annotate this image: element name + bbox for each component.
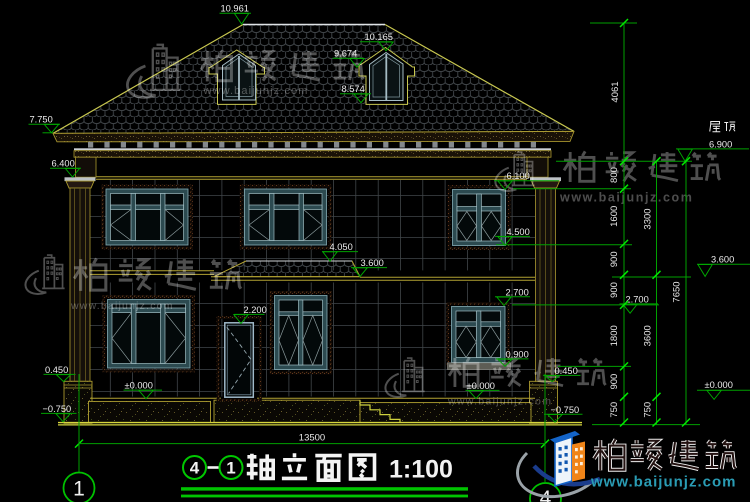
svg-text:0.450: 0.450 (555, 366, 578, 376)
svg-text:±0.000: ±0.000 (125, 381, 153, 391)
svg-text:6.900: 6.900 (709, 140, 732, 150)
svg-text:900: 900 (609, 251, 620, 267)
svg-text:±0.000: ±0.000 (705, 380, 733, 390)
svg-text:0.450: 0.450 (45, 365, 68, 375)
svg-text:800: 800 (609, 167, 620, 183)
svg-text:1:100: 1:100 (389, 456, 453, 484)
svg-text:750: 750 (609, 402, 620, 418)
svg-text:4061: 4061 (610, 81, 621, 102)
svg-text:750: 750 (643, 402, 654, 418)
svg-text:www.baijunjz.com: www.baijunjz.com (447, 396, 552, 408)
svg-text:8.574: 8.574 (342, 84, 365, 94)
svg-text:7.750: 7.750 (30, 114, 53, 124)
svg-text:1: 1 (226, 459, 235, 478)
svg-text:±0.000: ±0.000 (467, 381, 495, 391)
svg-text:13500: 13500 (299, 433, 325, 444)
svg-text:www.baijunjz.com: www.baijunjz.com (559, 191, 693, 205)
svg-text:9.674: 9.674 (334, 49, 357, 59)
svg-text:1800: 1800 (609, 325, 620, 346)
svg-text:900: 900 (609, 282, 620, 298)
svg-text:1600: 1600 (609, 206, 620, 227)
svg-text:4.050: 4.050 (330, 242, 353, 252)
svg-text:www.baijunjz.com: www.baijunjz.com (70, 300, 174, 312)
svg-text:6.400: 6.400 (52, 159, 75, 169)
svg-text:2.200: 2.200 (244, 305, 267, 315)
svg-text:1: 1 (73, 478, 85, 501)
svg-text:10.165: 10.165 (365, 32, 393, 42)
svg-text:10.961: 10.961 (221, 4, 249, 14)
svg-text:0.900: 0.900 (506, 350, 529, 360)
svg-text:4.500: 4.500 (507, 227, 530, 237)
svg-text:900: 900 (609, 374, 620, 390)
svg-text:7650: 7650 (672, 281, 683, 302)
svg-text:www.baijunjz.com: www.baijunjz.com (203, 85, 309, 97)
svg-text:2.700: 2.700 (506, 288, 529, 298)
svg-text:3.600: 3.600 (711, 255, 734, 265)
svg-text:3.600: 3.600 (361, 258, 384, 268)
svg-text:3300: 3300 (643, 208, 654, 229)
svg-text:3600: 3600 (643, 325, 654, 346)
svg-text:2.700: 2.700 (626, 295, 649, 305)
svg-text:6.100: 6.100 (507, 171, 530, 181)
svg-text:−0.750: −0.750 (43, 404, 72, 414)
svg-text:−0.750: −0.750 (551, 405, 580, 415)
svg-text:4: 4 (190, 459, 200, 478)
svg-text:www.baijunjz.com: www.baijunjz.com (590, 474, 736, 491)
